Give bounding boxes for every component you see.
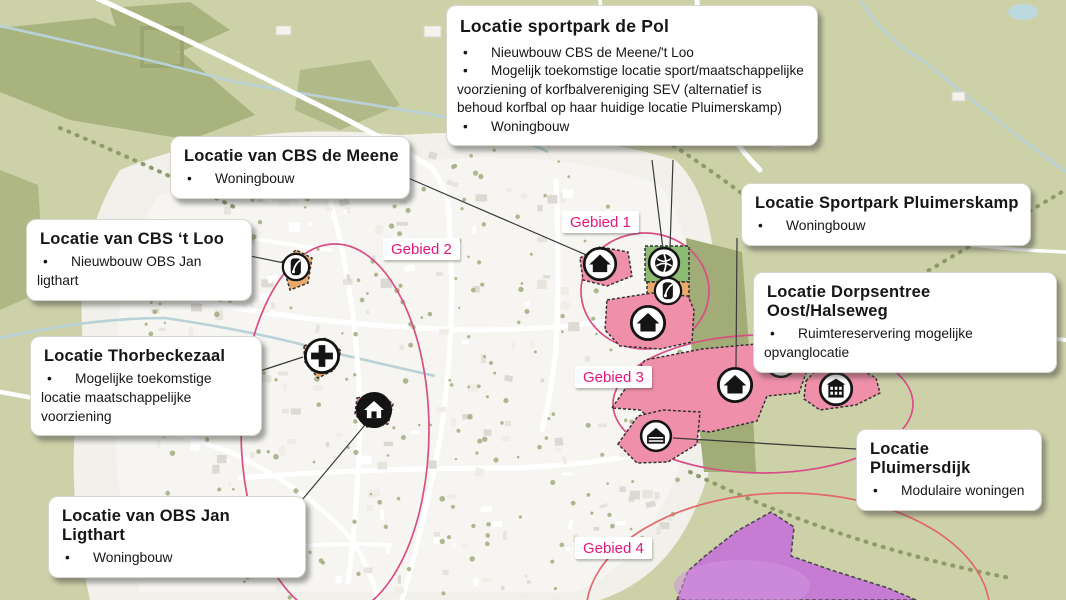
callout-bullet: •Mogelijke toekomstige locatie maatschap… (41, 370, 251, 426)
callout-bullets: •Woningbouw (181, 170, 399, 189)
house-icon (582, 246, 618, 282)
cross-icon (303, 337, 341, 375)
callout-title: Locatie Pluimersdijk (870, 440, 1031, 478)
house-icon (716, 366, 754, 404)
callout-pluimersdijk: Locatie Pluimersdijk •Modulaire woningen (856, 429, 1042, 511)
callout-title: Locatie sportpark de Pol (460, 16, 807, 37)
house-inverse-icon (355, 391, 393, 429)
school-icon (281, 252, 311, 282)
callout-title: Locatie Thorbeckezaal (44, 347, 251, 366)
korfball-icon (647, 246, 681, 280)
callout-title: Locatie Sportpark Pluimerskamp (755, 194, 1020, 213)
region-label-gebied-3: Gebied 3 (575, 366, 652, 388)
callout-bullets: •Nieuwbouw OBS Jan ligthart (37, 253, 241, 291)
callout-bullet: •Modulaire woningen (867, 482, 1031, 501)
callout-sportpark-pluimerskamp: Locatie Sportpark Pluimerskamp •Woningbo… (741, 183, 1031, 246)
region-label-gebied-1: Gebied 1 (562, 211, 639, 233)
callout-bullets: •Modulaire woningen (867, 482, 1031, 501)
callout-sportpark-de-pol: Locatie sportpark de Pol •Nieuwbouw CBS … (446, 5, 818, 146)
callout-bullets: •Ruimtereservering mogelijke opvanglocat… (764, 325, 1046, 363)
callout-dorpsentree: Locatie Dorpsentree Oost/Halseweg •Ruimt… (753, 272, 1057, 373)
callout-cbs-t-loo: Locatie van CBS ‘t Loo •Nieuwbouw OBS Ja… (26, 219, 252, 301)
house-icon (629, 304, 667, 342)
region-label-gebied-4: Gebied 4 (575, 537, 652, 559)
map-stage: Gebied 1Gebied 2Gebied 3Gebied 4 Locatie… (0, 0, 1066, 600)
region-label-gebied-2: Gebied 2 (383, 238, 460, 260)
callout-bullet: •Ruimtereservering mogelijke opvanglocat… (764, 325, 1046, 363)
callout-title: Locatie van CBS ‘t Loo (40, 230, 241, 249)
callout-bullet: •Mogelijk toekomstige locatie sport/maat… (457, 62, 807, 117)
callout-bullet: •Woningbouw (181, 170, 399, 189)
pond (1008, 4, 1038, 20)
callout-bullets: •Woningbouw (752, 217, 1020, 236)
callout-bullet: •Nieuwbouw CBS de Meene/'t Loo (457, 44, 807, 62)
callout-obs-jan-ligthart: Locatie van OBS Jan Ligthart •Woningbouw (48, 496, 306, 578)
callout-title: Locatie van OBS Jan Ligthart (62, 507, 295, 545)
callout-cbs-de-meene: Locatie van CBS de Meene •Woningbouw (170, 136, 410, 199)
apartment-icon (818, 371, 854, 407)
modular-house-icon (639, 419, 673, 453)
callout-bullets: •Nieuwbouw CBS de Meene/'t Loo•Mogelijk … (457, 44, 807, 136)
callout-bullet: •Nieuwbouw OBS Jan ligthart (37, 253, 241, 291)
callout-bullet: •Woningbouw (59, 549, 295, 568)
callout-bullet: •Woningbouw (752, 217, 1020, 236)
callout-title: Locatie van CBS de Meene (184, 147, 399, 166)
school-icon (653, 276, 683, 306)
callout-bullet: •Woningbouw (457, 118, 807, 136)
callout-bullets: •Woningbouw (59, 549, 295, 568)
callout-bullets: •Mogelijke toekomstige locatie maatschap… (41, 370, 251, 426)
callout-thorbeckezaal: Locatie Thorbeckezaal •Mogelijke toekoms… (30, 336, 262, 436)
callout-title: Locatie Dorpsentree Oost/Halseweg (767, 283, 1046, 321)
